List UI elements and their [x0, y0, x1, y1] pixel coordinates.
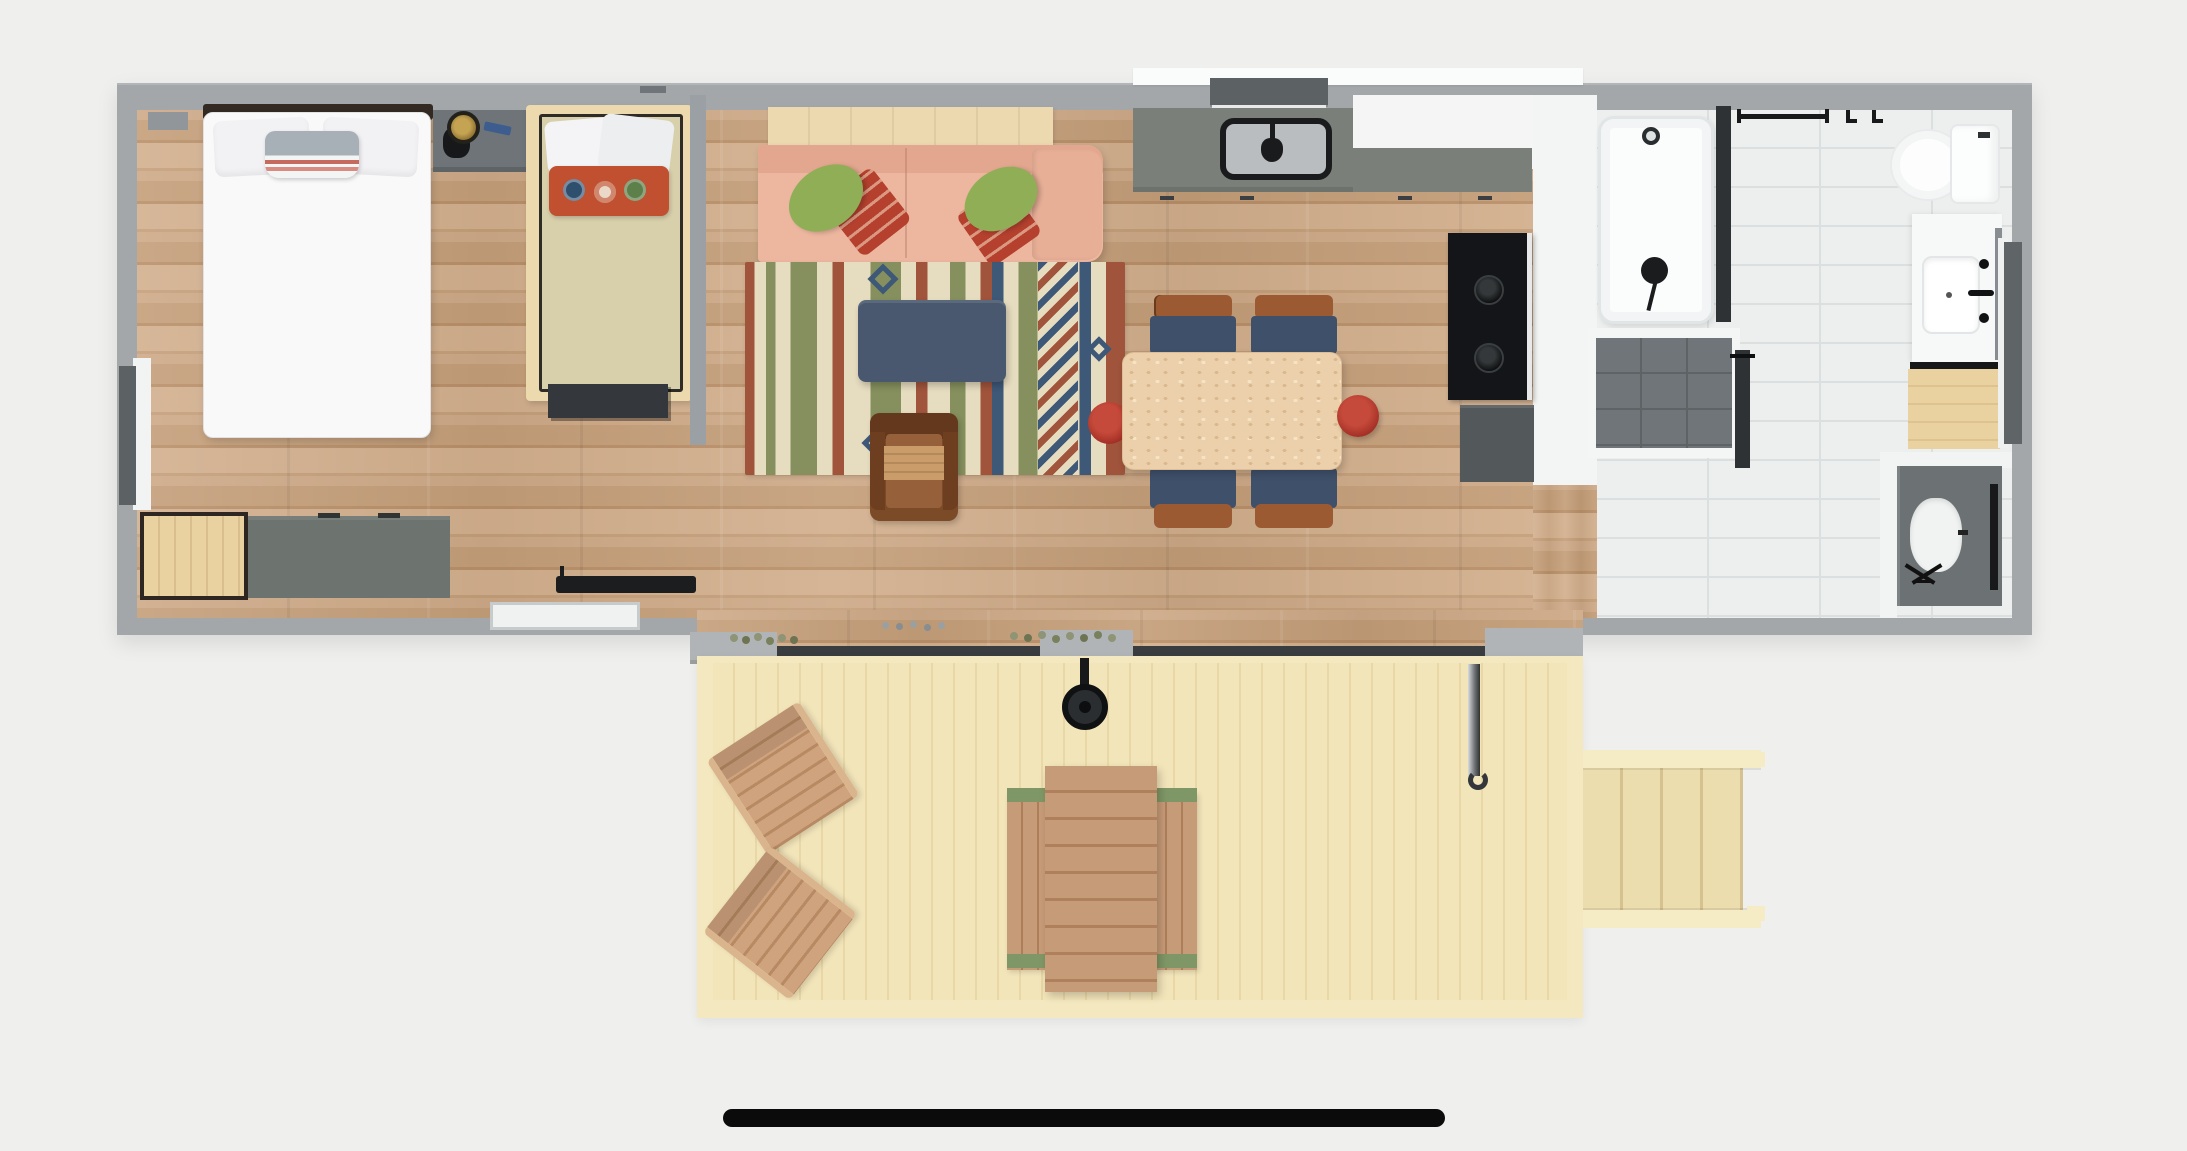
roof-vent: [640, 86, 666, 93]
hook-pole: [1468, 664, 1480, 776]
twin-pillow-badge-blue: [563, 179, 585, 201]
sofa-seam-1: [905, 148, 907, 258]
bathroom-passage-floor: [1533, 480, 1597, 618]
toilet-tank: [1950, 124, 2000, 204]
twin-pillow-badge-green: [624, 179, 646, 201]
dresser-handle-1: [318, 513, 340, 518]
deck-stairs-rail-bottom: [1583, 910, 1761, 928]
towel-bar-bracket-2: [1825, 109, 1829, 123]
planter-1: [730, 634, 738, 642]
bottom-wall-window: [490, 602, 640, 630]
door-wall-floor-strip: [697, 610, 1583, 648]
switch-panel: [148, 112, 188, 130]
stool-towel-rail: [1910, 362, 2000, 369]
cabinet-handle-1: [1160, 196, 1174, 200]
vanity-faucet-knob-2: [1979, 313, 1989, 323]
faucet-head: [1261, 138, 1283, 162]
wall-oven: [1448, 233, 1532, 400]
dining-chair-bottom-1-seat: [1150, 468, 1236, 508]
kitchen-window-ledge: [1133, 68, 1583, 85]
left-window: [119, 366, 136, 505]
shower-door-handle: [1730, 354, 1755, 358]
rug-zigzag-band: [1038, 262, 1078, 475]
partition-wall: [690, 95, 706, 445]
closet-ladder-crossbar: [1914, 580, 1932, 583]
oven-dial-1: [1474, 275, 1504, 305]
console-table: [768, 107, 1053, 147]
stairs-post-bottom: [1747, 906, 1765, 921]
picnic-table-top: [1045, 766, 1157, 992]
vanity-faucet-knob-1: [1979, 259, 1989, 269]
stairs-post-top: [1747, 752, 1765, 767]
armchair-arm-right: [943, 432, 958, 510]
dining-chair-top-2-seat: [1251, 316, 1337, 354]
dining-chair-bottom-2-seat: [1251, 468, 1337, 508]
towel-hook-2: [1872, 110, 1883, 123]
glass-panel-1: [1716, 106, 1731, 322]
kitchen-window: [1210, 78, 1328, 105]
towel-bar-bracket-1: [1737, 109, 1741, 123]
vanity-faucet: [1968, 290, 1994, 296]
picnic-bench-right: [1151, 792, 1197, 970]
shower-head: [1641, 257, 1668, 284]
twin-pillow-badge-cream: [594, 181, 616, 203]
nightstand-lamp: [447, 111, 480, 144]
bathroom-wood-stool: [1908, 369, 2000, 449]
wood-cabinet: [140, 512, 248, 600]
vanity-drain: [1946, 292, 1952, 298]
shower-floor: [1596, 338, 1732, 448]
towel-bar: [1737, 114, 1829, 119]
deck-stairs-treads: [1583, 750, 1743, 928]
stool-red-right: [1337, 395, 1379, 437]
grill-knob: [1079, 701, 1091, 713]
bathtub: [1598, 116, 1714, 324]
twin-foot-bench: [548, 384, 668, 418]
dining-chair-bottom-2-rail: [1255, 504, 1333, 528]
dining-table: [1122, 352, 1342, 470]
gray-dresser: [248, 516, 450, 598]
cabinet-handle-2: [1240, 196, 1254, 200]
dresser-handle-2: [378, 513, 400, 518]
armchair-arm-left: [870, 432, 885, 510]
wall-oven-trim: [1527, 233, 1532, 400]
closet-hinge-bar: [1990, 484, 1998, 590]
coffee-table: [858, 300, 1006, 382]
washer-latch: [1958, 530, 1968, 535]
cabinet-handle-3: [1398, 196, 1412, 200]
closet-wall-left: [1880, 452, 1897, 618]
dining-chair-bottom-1-rail: [1154, 504, 1232, 528]
floor-plan-scene: [0, 0, 2187, 1151]
oven-dial-2: [1474, 343, 1504, 373]
armchair-blanket: [884, 446, 944, 480]
sliding-door-handle: [560, 566, 564, 578]
tub-drain: [1642, 127, 1660, 145]
sofa-armrest: [1032, 149, 1102, 260]
glass-panel-2: [1735, 350, 1750, 468]
door-hardware: [882, 622, 889, 629]
right-window: [2004, 242, 2022, 444]
kitchen-counter-gray-band: [1353, 148, 1532, 192]
deck-stairs-rail-top: [1583, 750, 1761, 768]
washer: [1910, 498, 1962, 572]
toilet-flush-button: [1978, 132, 1990, 138]
base-cabinet: [1460, 405, 1534, 482]
dining-chair-top-1-seat: [1150, 316, 1236, 354]
towel-hook-1: [1846, 110, 1857, 123]
cabinet-handle-4: [1478, 196, 1492, 200]
bed-striped-blanket: [265, 131, 359, 178]
home-indicator[interactable]: [723, 1109, 1445, 1127]
sliding-door: [556, 576, 696, 593]
hook-pole-hook: [1468, 770, 1488, 790]
planter-2: [1010, 632, 1018, 640]
